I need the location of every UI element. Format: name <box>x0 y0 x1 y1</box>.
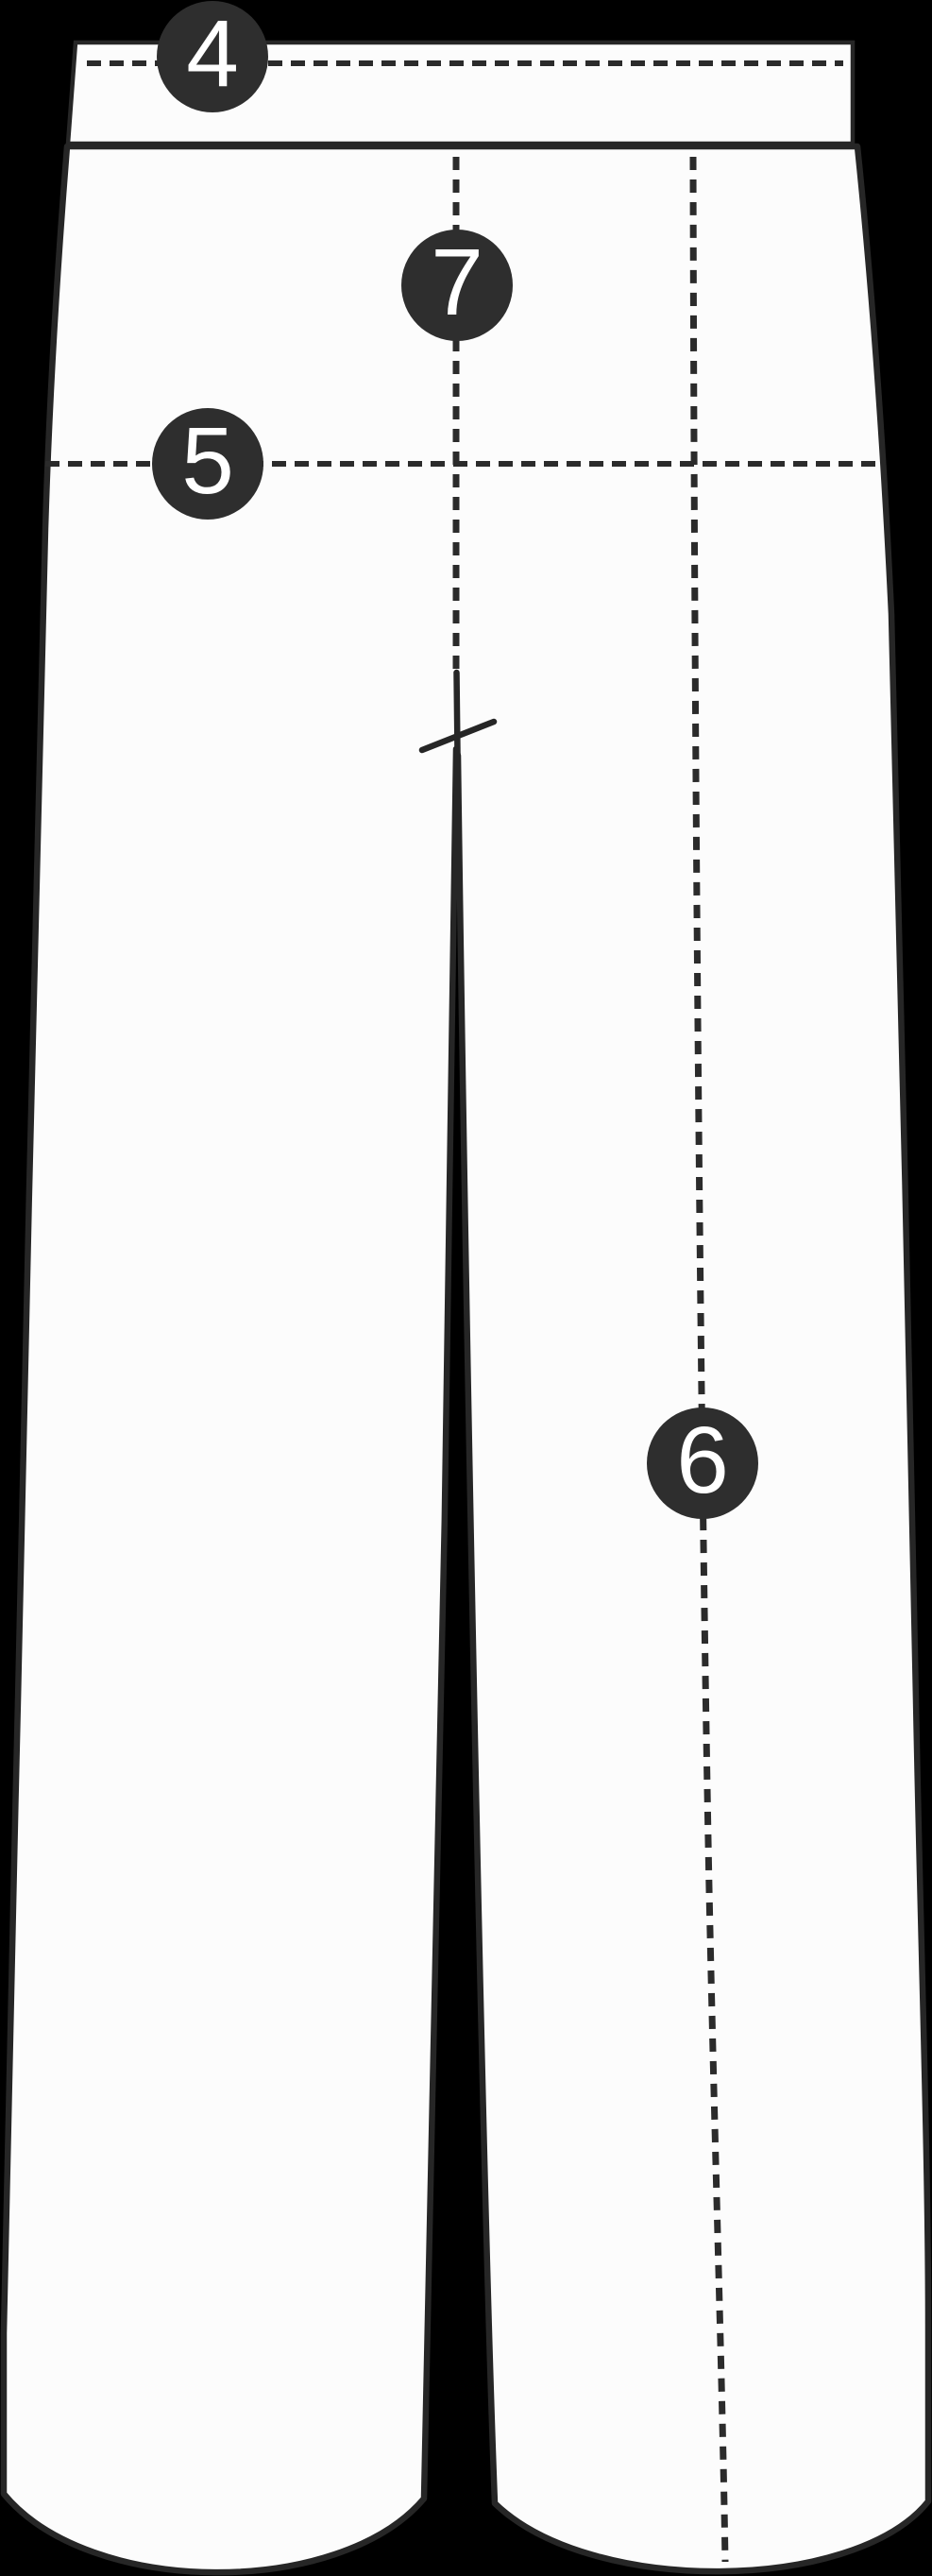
marker-6-badge: 6 <box>647 1407 758 1519</box>
marker-5-badge: 5 <box>152 408 263 520</box>
marker-6-label: 6 <box>676 1413 729 1508</box>
marker-7-badge: 7 <box>401 230 513 341</box>
marker-4-badge: 4 <box>157 1 268 112</box>
marker-5-label: 5 <box>181 414 234 508</box>
trousers-diagram <box>0 0 932 2576</box>
pants-body-outline <box>4 146 928 2572</box>
marker-4-label: 4 <box>186 7 239 101</box>
crotch-seam-line <box>457 673 458 754</box>
marker-7-label: 7 <box>431 235 483 330</box>
size-guide-figure: 4 7 5 6 <box>0 0 932 2576</box>
